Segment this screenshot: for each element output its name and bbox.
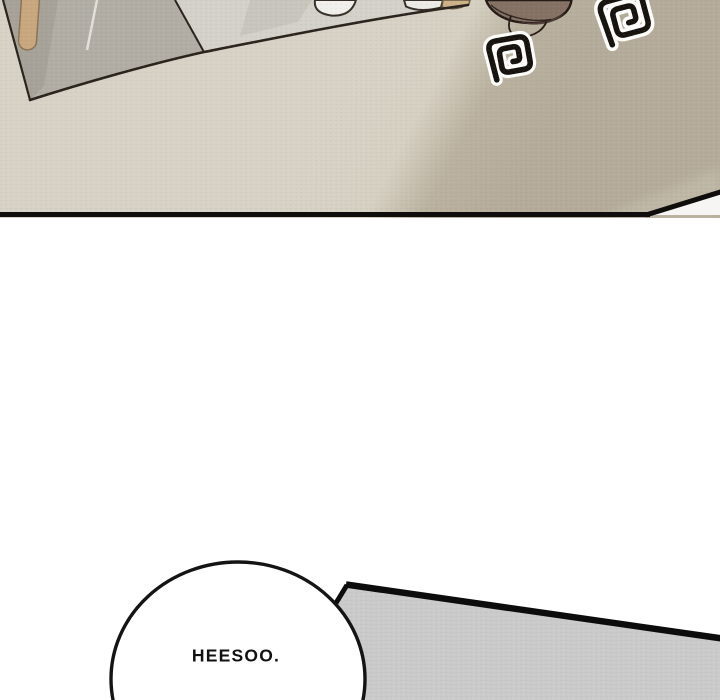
paper-texture: [0, 0, 720, 212]
comic-panel-top: [0, 0, 720, 218]
comic-page: HEESOO.: [0, 0, 720, 700]
comic-panel-bottom: HEESOO.: [0, 540, 720, 700]
panel-gutter: [0, 218, 720, 540]
panel-bottom-art: HEESOO.: [0, 540, 720, 700]
speech-bubble: [111, 562, 365, 700]
speech-bubble-text: HEESOO.: [192, 646, 280, 666]
panel-top-art: [0, 0, 720, 218]
